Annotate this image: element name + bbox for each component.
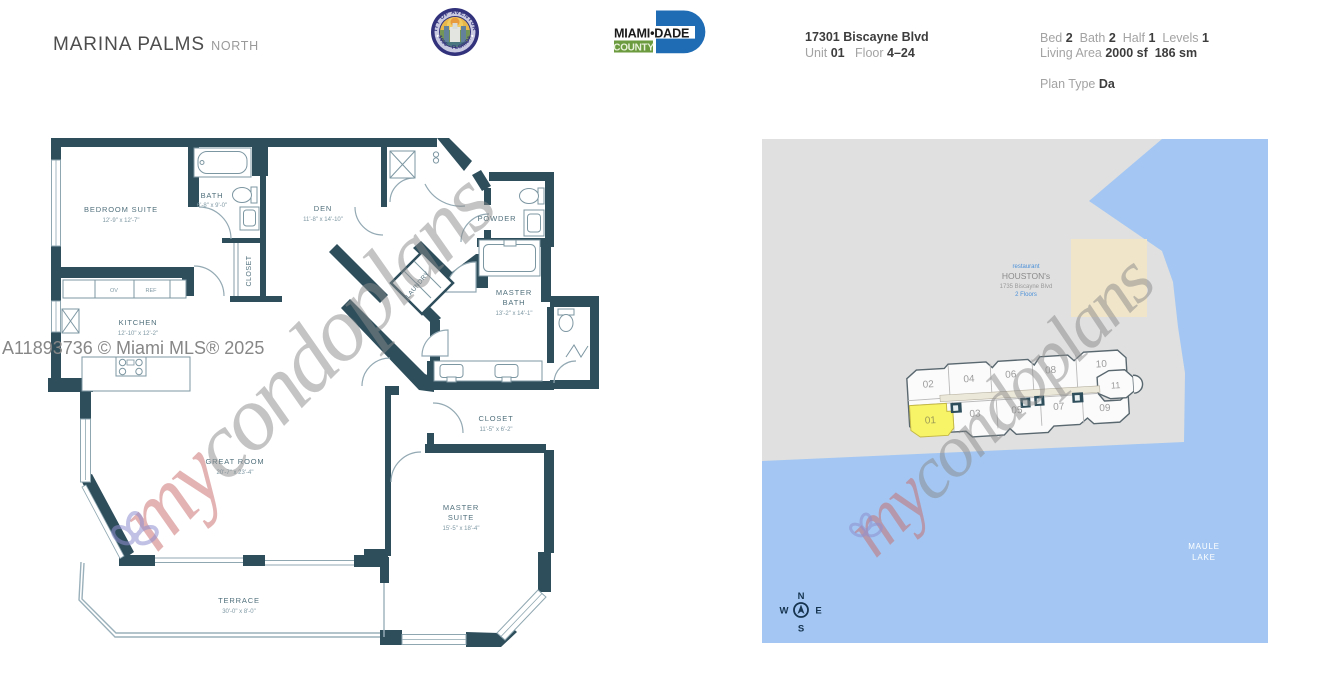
svg-text:12'-10" x 12'-2": 12'-10" x 12'-2" xyxy=(118,331,158,337)
svg-text:MIAMI•DADE: MIAMI•DADE xyxy=(614,26,689,40)
svg-text:CITY OF AVENTURA: CITY OF AVENTURA xyxy=(0,0,477,32)
svg-text:6'-8" x 9'-0": 6'-8" x 9'-0" xyxy=(197,203,227,209)
svg-text:1735 Biscayne Blvd: 1735 Biscayne Blvd xyxy=(1000,284,1053,290)
svg-text:N: N xyxy=(798,591,805,602)
svg-text:BATH: BATH xyxy=(503,298,526,307)
svg-text:OV: OV xyxy=(110,288,118,294)
svg-text:09: 09 xyxy=(1099,403,1111,415)
svg-text:A11893736 © Miami MLS® 2025: A11893736 © Miami MLS® 2025 xyxy=(2,338,264,358)
svg-text:02: 02 xyxy=(922,379,934,391)
svg-text:REF: REF xyxy=(146,288,158,294)
svg-text:11'-5" x 6'-2": 11'-5" x 6'-2" xyxy=(479,427,512,433)
svg-text:BATH: BATH xyxy=(201,191,224,200)
svg-text:30'-0" x 8'-0": 30'-0" x 8'-0" xyxy=(222,609,256,615)
svg-text:restaurant: restaurant xyxy=(1012,264,1039,270)
svg-text:2 Floors: 2 Floors xyxy=(1015,292,1037,298)
svg-text:MASTER: MASTER xyxy=(443,503,479,512)
svg-text:HOUSTON's: HOUSTON's xyxy=(1002,271,1050,281)
svg-text:BEDROOM SUITE: BEDROOM SUITE xyxy=(84,205,158,214)
svg-text:E: E xyxy=(815,606,821,617)
svg-text:MAULE: MAULE xyxy=(1188,542,1220,551)
svg-text:KITCHEN: KITCHEN xyxy=(119,318,158,327)
svg-text:LAKE: LAKE xyxy=(1192,553,1216,562)
svg-text:12'-9" x 12'-7": 12'-9" x 12'-7" xyxy=(103,218,140,224)
svg-text:CLOSET: CLOSET xyxy=(478,414,513,423)
svg-text:13'-2" x 14'-1": 13'-2" x 14'-1" xyxy=(496,311,533,317)
svg-text:SUITE: SUITE xyxy=(448,513,474,522)
svg-text:15'-5" x 18'-4": 15'-5" x 18'-4" xyxy=(443,526,480,532)
svg-text:11: 11 xyxy=(1111,380,1121,391)
svg-text:TERRACE: TERRACE xyxy=(218,596,260,605)
svg-text:11'-8" x 14'-10": 11'-8" x 14'-10" xyxy=(303,217,343,223)
svg-text:MASTER: MASTER xyxy=(496,288,532,297)
svg-text:COUNTY: COUNTY xyxy=(613,42,654,53)
svg-text:W: W xyxy=(780,606,789,617)
svg-text:DEN: DEN xyxy=(314,204,332,213)
svg-text:CLOSET: CLOSET xyxy=(246,255,253,286)
svg-text:S: S xyxy=(798,624,804,635)
